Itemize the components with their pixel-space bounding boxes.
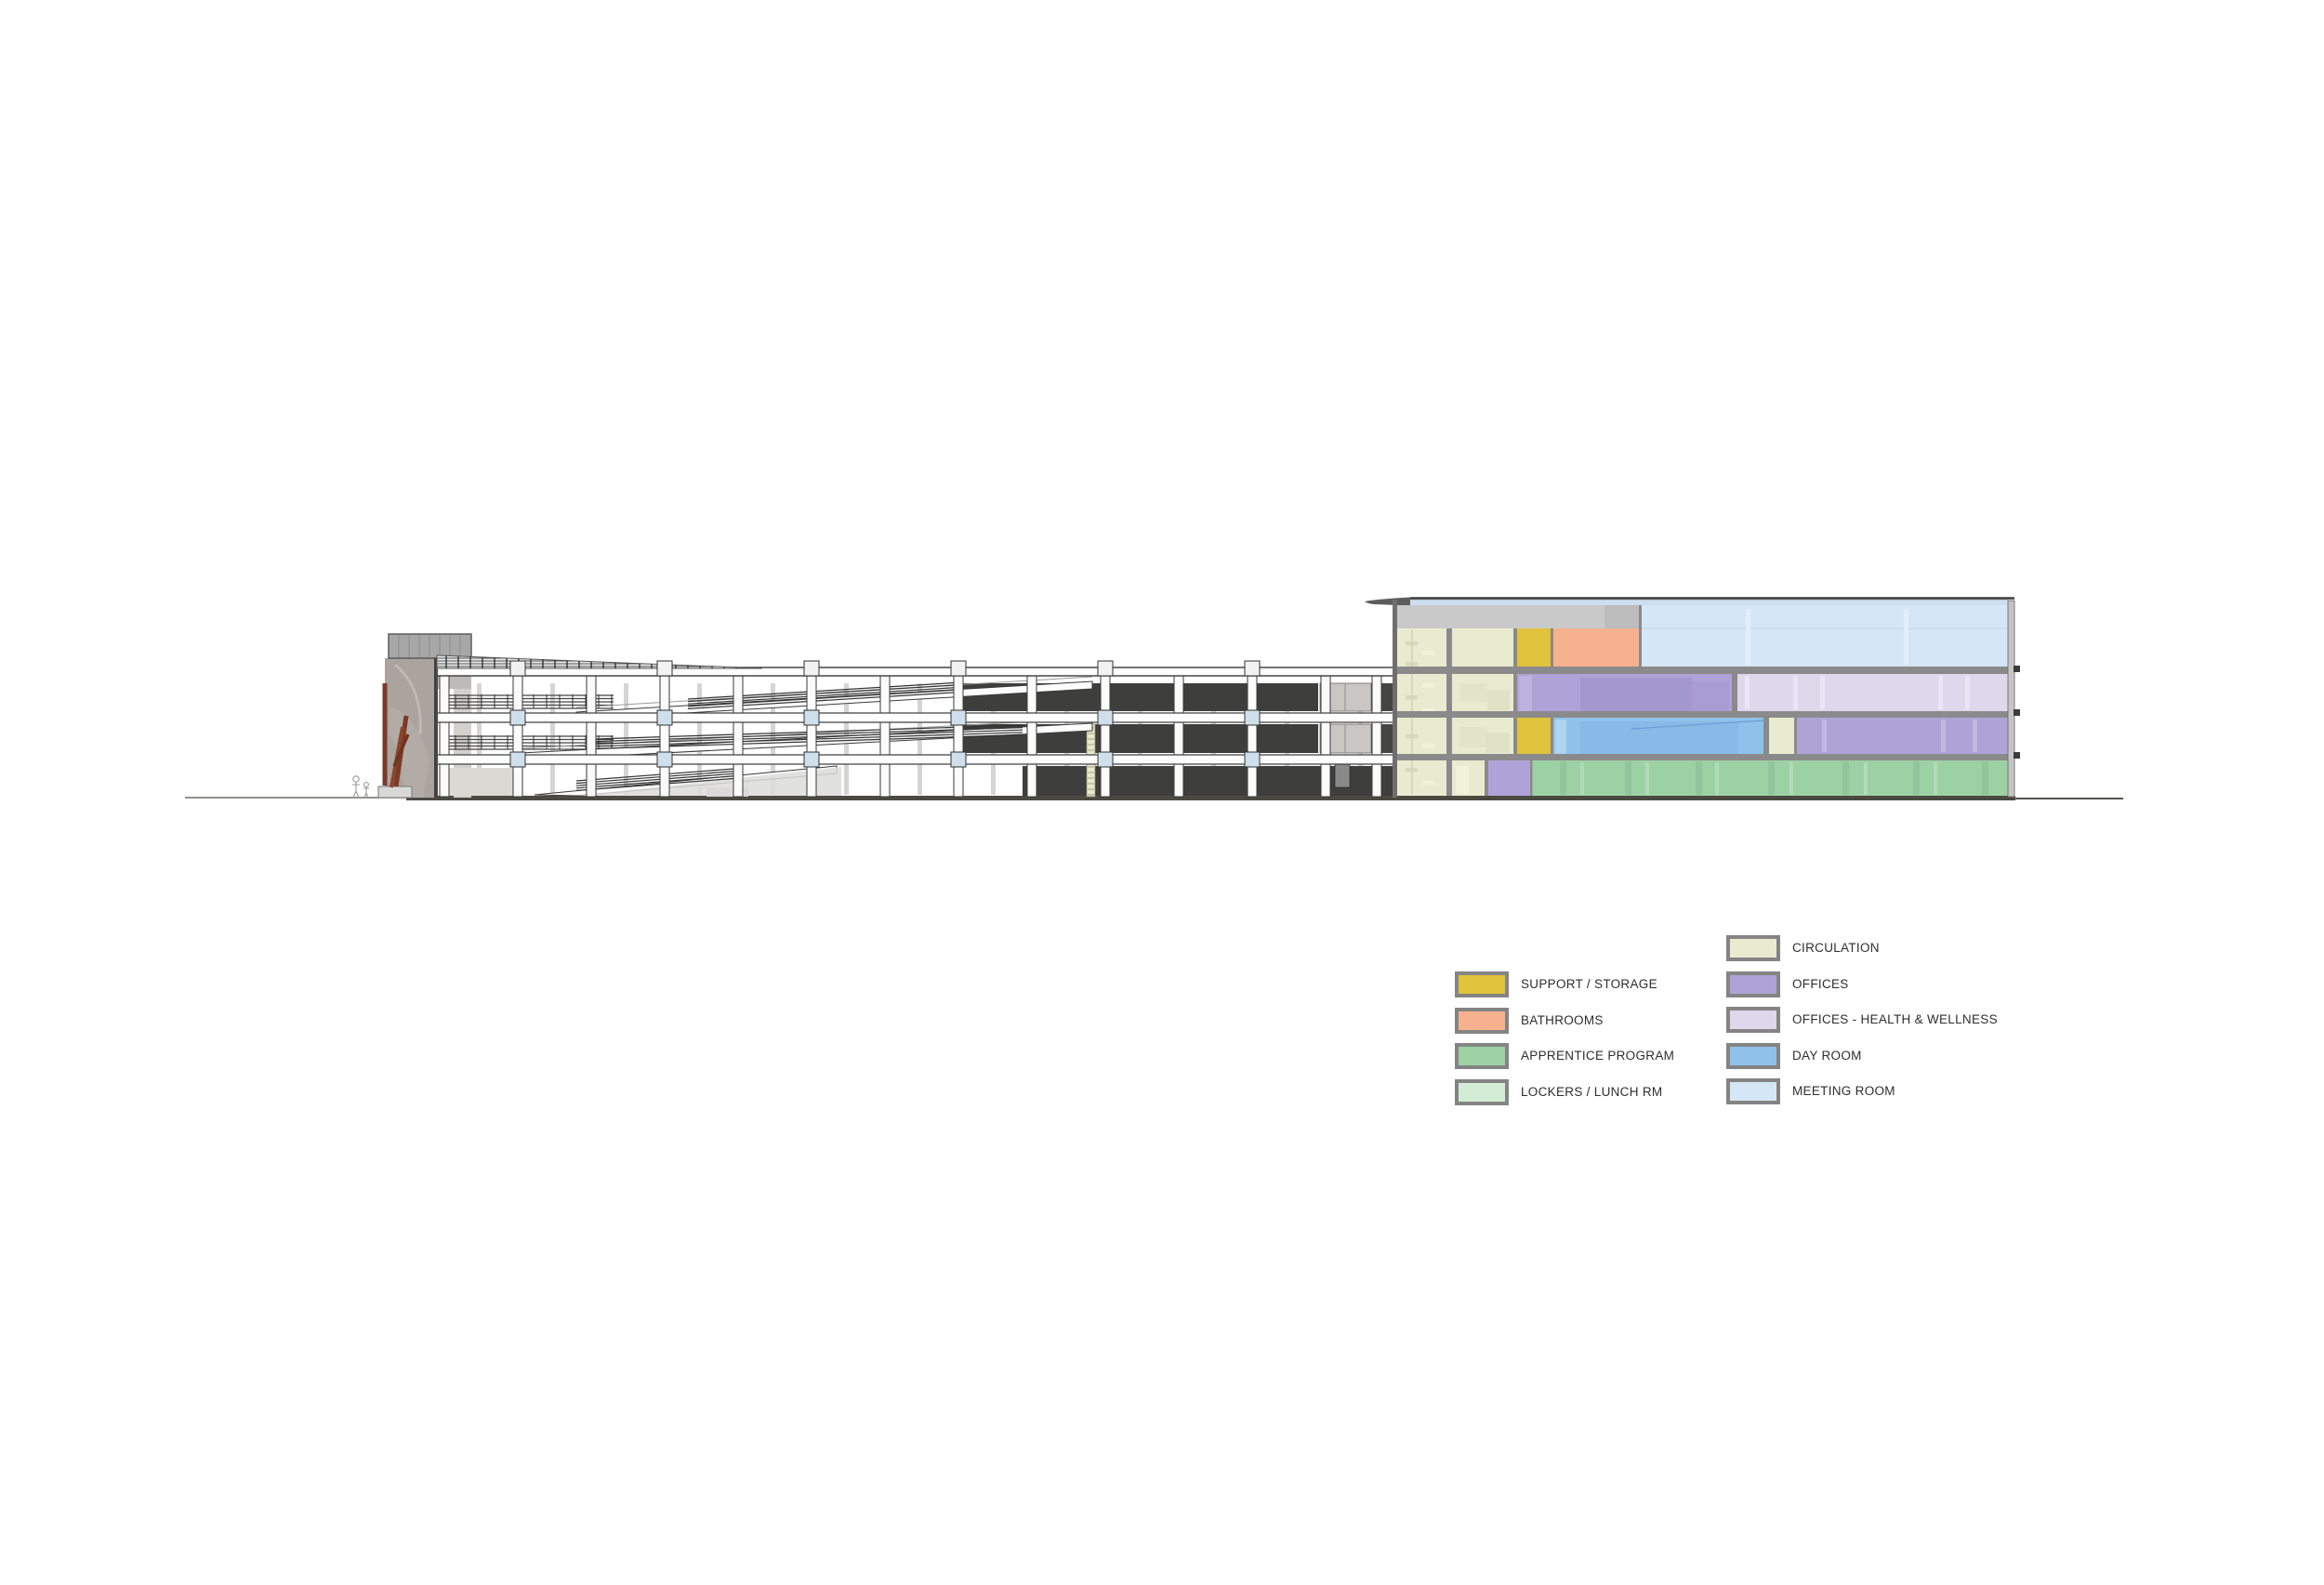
- legend-label: DAY ROOM: [1792, 1043, 1862, 1069]
- apprentice-program-swatch: [1455, 1043, 1509, 1069]
- legend-label: LOCKERS / LUNCH RM: [1521, 1079, 1662, 1105]
- legend-label: APPRENTICE PROGRAM: [1521, 1043, 1674, 1069]
- architectural-section-sheet: SUPPORT / STORAGE BATHROOMS APPRENTICE P…: [0, 0, 2324, 1585]
- legend-label: BATHROOMS: [1521, 1008, 1604, 1034]
- day-room-swatch: [1726, 1043, 1780, 1069]
- floor4-circulation-room: [1452, 628, 1513, 667]
- legend-label: OFFICES: [1792, 971, 1849, 997]
- floor2-circulation-link: [1769, 718, 1794, 754]
- legend-right-column: CIRCULATION OFFICES OFFICES - HEALTH & W…: [1726, 935, 1998, 1115]
- floor4-support-storage: [1517, 628, 1551, 667]
- floor4-bathrooms: [1553, 628, 1639, 667]
- legend-left-column: SUPPORT / STORAGE BATHROOMS APPRENTICE P…: [1455, 971, 1674, 1115]
- ground-line: [185, 796, 2123, 800]
- program-block: [1365, 598, 2020, 799]
- offices-swatch: [1726, 971, 1780, 997]
- floor2-support-storage: [1517, 718, 1551, 754]
- legend-item-support-storage: SUPPORT / STORAGE: [1455, 971, 1674, 997]
- offices-health-wellness-swatch: [1726, 1007, 1780, 1033]
- legend-label: OFFICES - HEALTH & WELLNESS: [1792, 1007, 1998, 1033]
- meeting-room: [1642, 605, 2008, 667]
- garage-roof-louver-screen: [437, 651, 762, 668]
- legend-item-lockers-lunch: LOCKERS / LUNCH RM: [1455, 1079, 1674, 1105]
- lockers-lunch-swatch: [1455, 1079, 1509, 1105]
- legend-label: MEETING ROOM: [1792, 1078, 1895, 1104]
- people-figures: [352, 776, 369, 798]
- legend-item-day-room: DAY ROOM: [1726, 1043, 1998, 1069]
- building-section-drawing: [0, 0, 2324, 1585]
- floor1-offices: [1488, 760, 1530, 796]
- support-storage-swatch: [1455, 971, 1509, 997]
- legend-item-circulation: CIRCULATION: [1726, 935, 1998, 961]
- legend-item-meeting-room: MEETING ROOM: [1726, 1078, 1998, 1104]
- legend-label: SUPPORT / STORAGE: [1521, 971, 1657, 997]
- meeting-room-swatch: [1726, 1078, 1780, 1104]
- legend-label: CIRCULATION: [1792, 935, 1880, 961]
- roof-fin: [1365, 598, 1410, 606]
- block-right-edge: [2008, 601, 2020, 797]
- circulation-swatch: [1726, 935, 1780, 961]
- legend-item-apprentice-program: APPRENTICE PROGRAM: [1455, 1043, 1674, 1069]
- legend-item-bathrooms: BATHROOMS: [1455, 1008, 1674, 1034]
- legend-item-offices-health-wellness: OFFICES - HEALTH & WELLNESS: [1726, 1007, 1998, 1033]
- bathrooms-swatch: [1455, 1008, 1509, 1034]
- legend-item-offices: OFFICES: [1726, 971, 1998, 997]
